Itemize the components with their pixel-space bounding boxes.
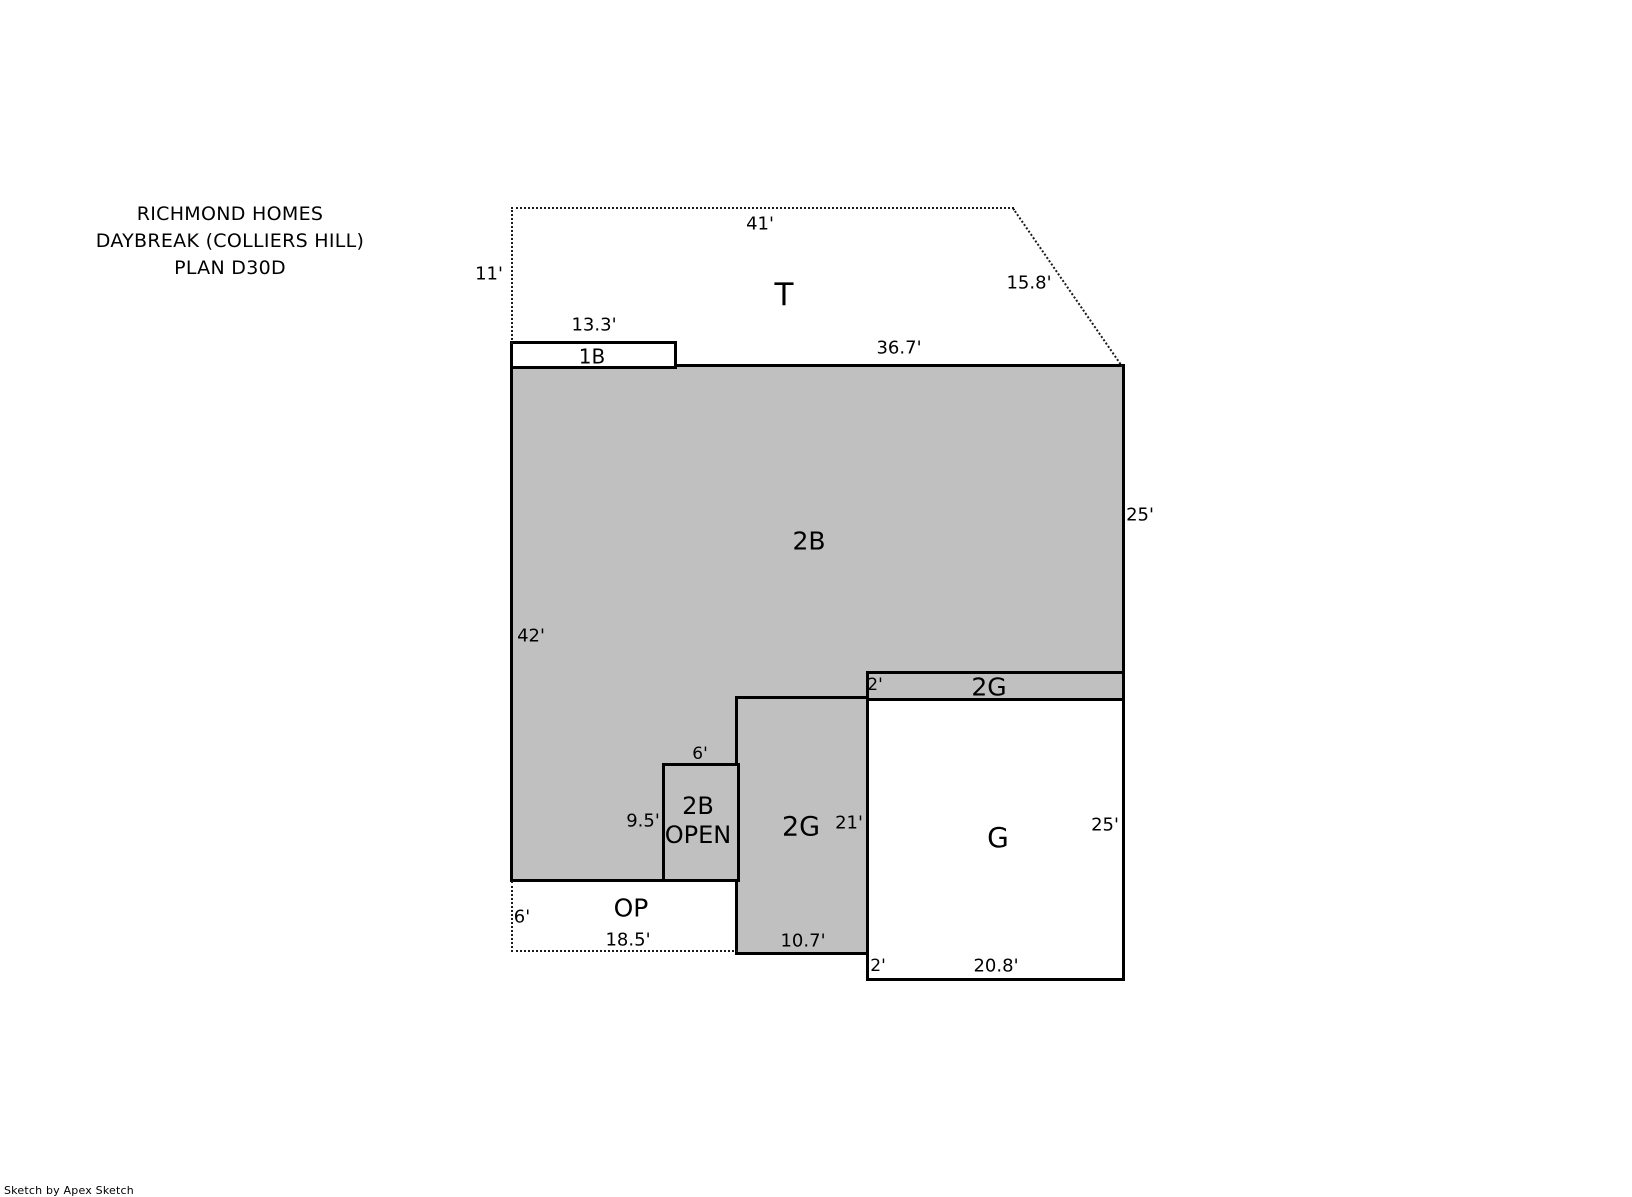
- label-2g-tall: 2G: [782, 811, 820, 842]
- dotted-line-t-top: [511, 207, 1014, 209]
- region-2b-upper: [510, 364, 1125, 674]
- dim-t-top: 41': [746, 215, 774, 236]
- dim-1b-top: 13.3': [571, 316, 616, 337]
- sketch-credit: Sketch by Apex Sketch: [4, 1184, 134, 1197]
- dim-2g-tall-right: 21': [835, 814, 863, 835]
- dim-g-right: 25': [1091, 816, 1119, 837]
- dim-2g-tall-bottom: 10.7': [780, 932, 825, 953]
- plan-title-line1: RICHMOND HOMES: [80, 201, 380, 228]
- dim-2b-open-left: 9.5': [626, 812, 660, 833]
- plan-title-line3: PLAN D30D: [80, 255, 380, 282]
- dim-2b-right: 25': [1126, 506, 1154, 527]
- label-2b-open-line1: 2B: [665, 792, 731, 821]
- plan-title-line2: DAYBREAK (COLLIERS HILL): [80, 228, 380, 255]
- dotted-line-op-left: [511, 881, 513, 952]
- dim-2b-left: 42': [517, 627, 545, 648]
- dim-2b-top: 36.7': [876, 339, 921, 360]
- dim-2b-open-top: 6': [692, 745, 708, 765]
- label-op: OP: [614, 895, 649, 924]
- label-g: G: [987, 822, 1009, 854]
- label-2b-open: 2B OPEN: [665, 792, 731, 850]
- label-2g-strip: 2G: [971, 674, 1006, 703]
- dotted-line-t-left: [511, 207, 513, 344]
- label-2b-open-line2: OPEN: [665, 821, 731, 850]
- label-2b: 2B: [792, 528, 825, 557]
- dim-t-left: 11': [475, 265, 503, 286]
- floor-plan-canvas: RICHMOND HOMES DAYBREAK (COLLIERS HILL) …: [0, 0, 1632, 1197]
- dim-g-bottom: 20.8': [973, 957, 1018, 978]
- dim-2g-strip-left: 2': [867, 676, 883, 696]
- dim-g-bottom-left: 2': [870, 957, 886, 977]
- label-1b: 1B: [579, 346, 605, 369]
- dim-op-left: 6': [514, 908, 530, 929]
- dim-op-bottom: 18.5': [605, 931, 650, 952]
- label-t: T: [775, 278, 794, 314]
- plan-title: RICHMOND HOMES DAYBREAK (COLLIERS HILL) …: [80, 201, 380, 282]
- dim-t-right: 15.8': [1006, 274, 1051, 295]
